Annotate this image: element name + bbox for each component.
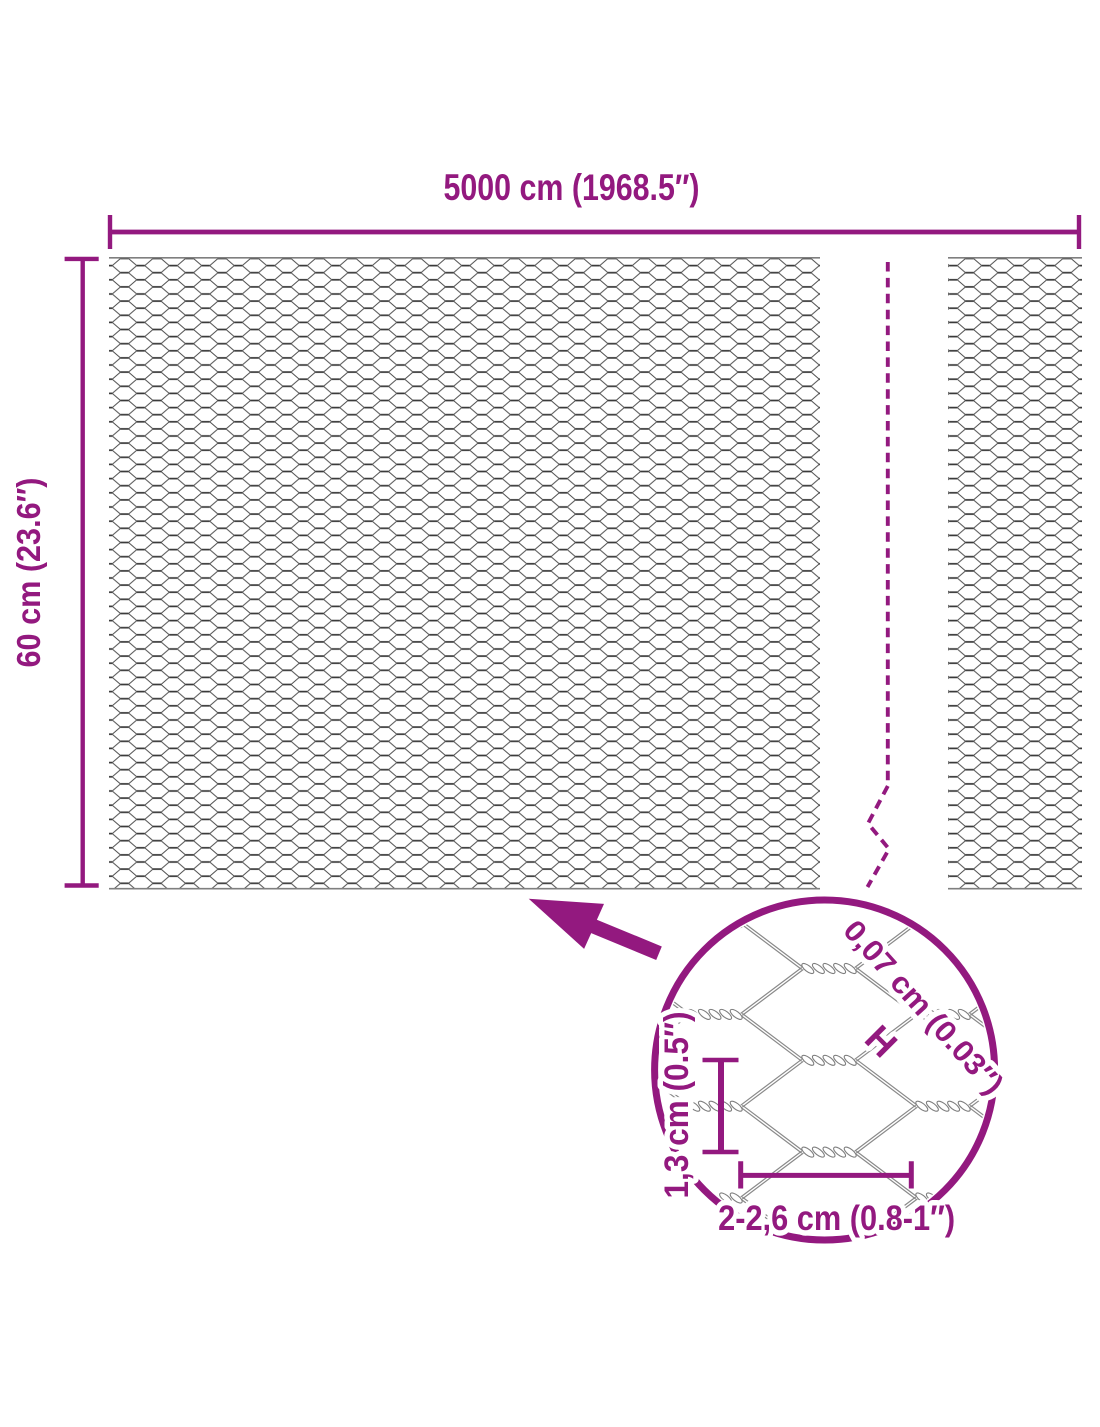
svg-text:2-2,6 cm (0.8-1″): 2-2,6 cm (0.8-1″) — [718, 1199, 955, 1238]
svg-text:60 cm (23.6″): 60 cm (23.6″) — [10, 478, 47, 668]
svg-text:1,3 cm (0.5″): 1,3 cm (0.5″) — [658, 1012, 696, 1199]
svg-text:5000 cm (1968.5″): 5000 cm (1968.5″) — [444, 167, 700, 208]
